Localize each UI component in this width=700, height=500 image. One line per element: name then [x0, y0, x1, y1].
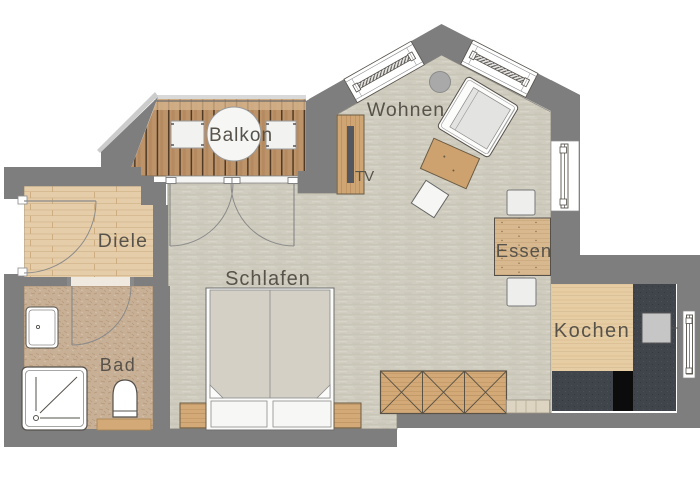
svg-text:Kochen: Kochen	[554, 320, 630, 342]
svg-text:Balkon: Balkon	[209, 125, 273, 146]
svg-text:Bad: Bad	[100, 355, 137, 375]
svg-text:Diele: Diele	[98, 230, 148, 252]
svg-text:TV: TV	[355, 168, 374, 185]
svg-text:Schlafen: Schlafen	[225, 268, 311, 290]
svg-text:Essen: Essen	[496, 240, 552, 261]
svg-text:Wohnen: Wohnen	[367, 99, 445, 121]
